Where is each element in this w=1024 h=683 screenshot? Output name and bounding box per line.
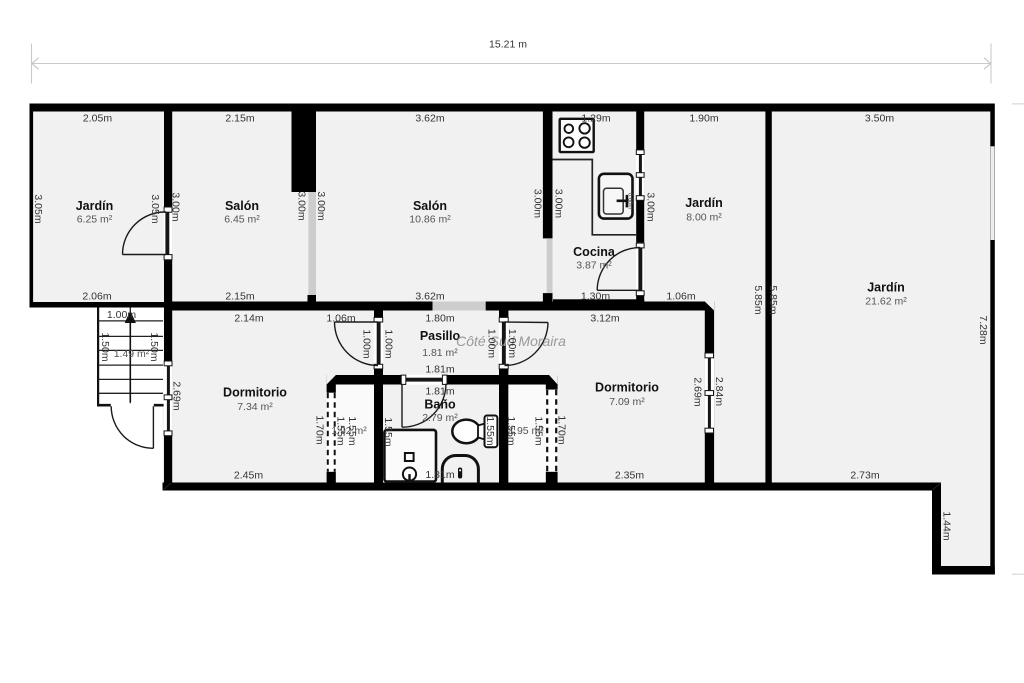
svg-text:15.21 m: 15.21 m [489, 39, 527, 51]
svg-text:1.44m: 1.44m [940, 511, 952, 540]
svg-text:2.15m: 2.15m [225, 291, 254, 303]
svg-text:2.15m: 2.15m [225, 113, 254, 125]
svg-text:1.00m: 1.00m [382, 329, 394, 358]
svg-text:3.00m: 3.00m [169, 192, 181, 221]
svg-text:2.69m: 2.69m [170, 381, 182, 410]
svg-text:3.00m: 3.00m [315, 191, 327, 220]
svg-text:1.55m: 1.55m [334, 416, 346, 445]
svg-text:3.62m: 3.62m [415, 113, 444, 125]
svg-text:10.86 m²: 10.86 m² [409, 214, 451, 226]
svg-text:1.50m: 1.50m [99, 332, 111, 361]
svg-text:1.90m: 1.90m [689, 113, 718, 125]
svg-text:6.45 m²: 6.45 m² [224, 214, 260, 226]
svg-text:1.81 m²: 1.81 m² [422, 347, 458, 359]
svg-text:Baño: Baño [424, 398, 456, 412]
svg-text:7.09 m²: 7.09 m² [609, 396, 645, 408]
svg-text:1.50m: 1.50m [148, 332, 160, 361]
svg-text:3.05m: 3.05m [32, 194, 44, 223]
svg-text:1.49 m²: 1.49 m² [114, 348, 150, 360]
svg-text:Dormitorio: Dormitorio [595, 381, 659, 395]
svg-text:8.00 m²: 8.00 m² [686, 212, 722, 224]
svg-text:Jardín: Jardín [867, 281, 905, 295]
svg-text:1.55m: 1.55m [346, 416, 358, 445]
svg-text:5.85m: 5.85m [767, 285, 779, 314]
svg-text:1.81m: 1.81m [425, 386, 454, 398]
svg-text:21.62 m²: 21.62 m² [865, 296, 907, 308]
svg-text:2.14m: 2.14m [234, 313, 263, 325]
svg-text:1.30m: 1.30m [581, 291, 610, 303]
svg-text:3.00m: 3.00m [552, 189, 564, 218]
svg-text:3.05m: 3.05m [149, 194, 161, 223]
svg-text:3.62m: 3.62m [415, 291, 444, 303]
svg-text:3.12m: 3.12m [590, 313, 619, 325]
svg-text:7.28m: 7.28m [977, 315, 989, 344]
svg-text:1.80m: 1.80m [425, 313, 454, 325]
svg-text:1.81m: 1.81m [425, 469, 454, 481]
svg-text:3.00m: 3.00m [295, 191, 307, 220]
svg-text:1.06m: 1.06m [666, 291, 695, 303]
svg-text:Pasillo: Pasillo [420, 329, 461, 343]
svg-text:0.60m: 0.60m [627, 193, 633, 210]
svg-text:1.00m: 1.00m [360, 329, 372, 358]
svg-text:1.70m: 1.70m [313, 415, 325, 444]
svg-text:5.85m: 5.85m [752, 285, 764, 314]
svg-text:1.55m: 1.55m [382, 417, 394, 446]
svg-text:7.34 m²: 7.34 m² [237, 401, 273, 413]
svg-text:3.87 m²: 3.87 m² [576, 260, 612, 272]
svg-text:Dormitorio: Dormitorio [223, 386, 287, 400]
svg-text:1.55m: 1.55m [484, 416, 496, 445]
svg-text:2.79 m²: 2.79 m² [422, 412, 458, 424]
svg-text:Jardín: Jardín [76, 199, 114, 213]
svg-text:3.00m: 3.00m [644, 192, 656, 221]
svg-text:6.25 m²: 6.25 m² [77, 214, 113, 226]
svg-text:2.84m: 2.84m [713, 377, 725, 406]
svg-text:Salón: Salón [413, 199, 447, 213]
svg-text:1.00m: 1.00m [107, 309, 136, 321]
svg-text:2.69m: 2.69m [691, 377, 703, 406]
svg-text:Salón: Salón [225, 199, 259, 213]
svg-text:3.00m: 3.00m [531, 189, 543, 218]
svg-text:1.00m: 1.00m [506, 329, 518, 358]
svg-text:1.55m: 1.55m [532, 416, 544, 445]
svg-text:1.81m: 1.81m [425, 364, 454, 376]
svg-text:2.35m: 2.35m [615, 470, 644, 482]
svg-text:2.06m: 2.06m [82, 291, 111, 303]
svg-text:2.45m: 2.45m [234, 470, 263, 482]
svg-text:1.00m: 1.00m [485, 329, 497, 358]
svg-text:1.29m: 1.29m [581, 113, 610, 125]
svg-text:1.70m: 1.70m [555, 415, 567, 444]
svg-text:1.06m: 1.06m [326, 313, 355, 325]
svg-text:Jardín: Jardín [685, 196, 723, 210]
svg-text:2.73m: 2.73m [850, 470, 879, 482]
svg-text:3.50m: 3.50m [865, 113, 894, 125]
svg-text:1.55m: 1.55m [505, 416, 517, 445]
svg-text:Cocina: Cocina [573, 245, 616, 259]
svg-text:2.05m: 2.05m [83, 113, 112, 125]
